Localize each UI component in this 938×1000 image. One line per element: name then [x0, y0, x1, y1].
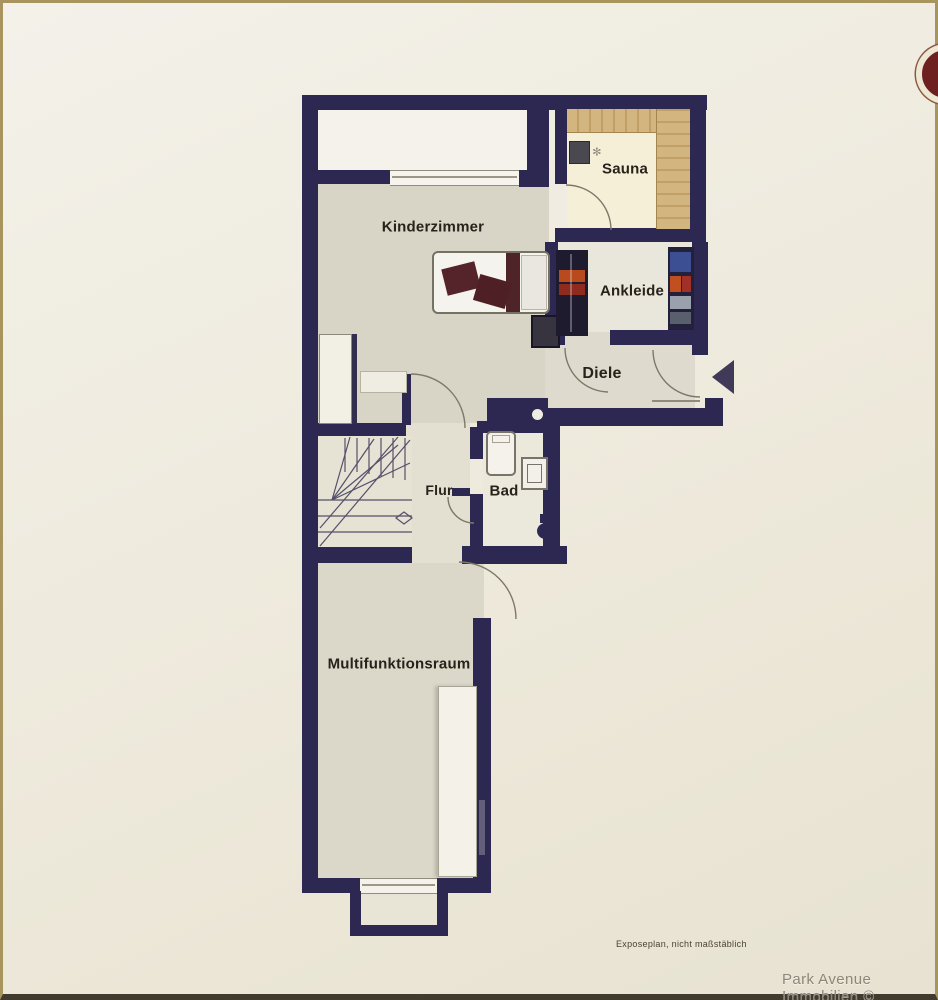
door-leaf-bad [452, 488, 470, 496]
ankleide-wardrobe-left [556, 250, 588, 336]
wall-bay-bottom [350, 925, 448, 936]
wardrobe-clothes-orange [559, 270, 585, 282]
wardrobe-box-grey [670, 296, 691, 309]
wall-bad-left-upper [470, 427, 483, 459]
ankleide-wardrobe-right [668, 247, 694, 330]
bay-window-floor [361, 891, 437, 925]
window-kinderzimmer-pane [392, 176, 517, 178]
window-multifunktionsraum [360, 878, 437, 894]
bed-pillow-white [521, 255, 547, 310]
toilet-bowl [537, 523, 554, 539]
label-diele: Diele [582, 365, 621, 383]
wall-dot [532, 409, 543, 420]
toilet-tank [540, 514, 552, 523]
wall-inner-left [302, 170, 391, 184]
roof-strip-area [318, 110, 527, 172]
wall-ankleide-right [692, 242, 708, 355]
window-mfr-pane [362, 884, 435, 886]
wall-sauna-left [555, 95, 567, 184]
wall-ankleide-bottom-right [610, 330, 692, 345]
wall-inner-corner [519, 170, 549, 187]
bed [432, 251, 550, 314]
label-kinderzimmer: Kinderzimmer [382, 219, 484, 236]
label-bad: Bad [490, 483, 519, 500]
wall-sauna-bottom [555, 228, 706, 242]
sauna-heater-icon [569, 141, 590, 164]
stairs-floor [318, 436, 412, 547]
mfr-closet [438, 686, 477, 877]
plan-disclaimer: Exposeplan, nicht maßstäblich [616, 939, 747, 949]
label-ankleide: Ankleide [600, 283, 664, 300]
floor-plan-photo: ✻ [0, 0, 938, 1000]
wall-annotation-text [479, 800, 485, 855]
bathtub-faucet [492, 435, 510, 443]
label-multifunktionsraum: Multifunktionsraum [328, 656, 471, 673]
kz-wardrobe [319, 334, 352, 424]
wardrobe-box-orange [670, 276, 681, 292]
wall-diele-bottom-end [705, 398, 723, 426]
bathtub [486, 431, 516, 476]
wall-top [302, 95, 707, 110]
kz-wardrobe-divider [352, 334, 357, 424]
kz-sideboard [360, 371, 407, 393]
entrance-arrow-icon [712, 360, 734, 394]
wall-sauna-right [690, 95, 706, 242]
entry-threshold-line [652, 400, 700, 402]
wall-diele-bottom [548, 408, 723, 426]
label-sauna: Sauna [602, 161, 648, 178]
wardrobe-box-darkgrey [670, 312, 691, 324]
wall-left [302, 95, 318, 893]
wardrobe-clothes-red [559, 284, 585, 295]
window-kinderzimmer [390, 170, 519, 186]
washbasin [521, 457, 548, 490]
wall-bad-left-lower [470, 494, 483, 548]
label-flur: Flur [425, 482, 452, 498]
wardrobe-box-red [682, 276, 691, 292]
wardrobe-shelf-line [570, 254, 572, 332]
wall-kz-bottom [302, 423, 406, 436]
wardrobe-box-blue [670, 252, 691, 272]
washbasin-inner [527, 464, 542, 483]
sauna-flower-icon: ✻ [592, 146, 601, 159]
sauna-bench-right [656, 109, 690, 229]
wall-stairs-bottom [302, 547, 412, 563]
wall-bad-bottom [462, 546, 567, 564]
agency-watermark: Park Avenue Immobilien © [782, 971, 938, 1000]
